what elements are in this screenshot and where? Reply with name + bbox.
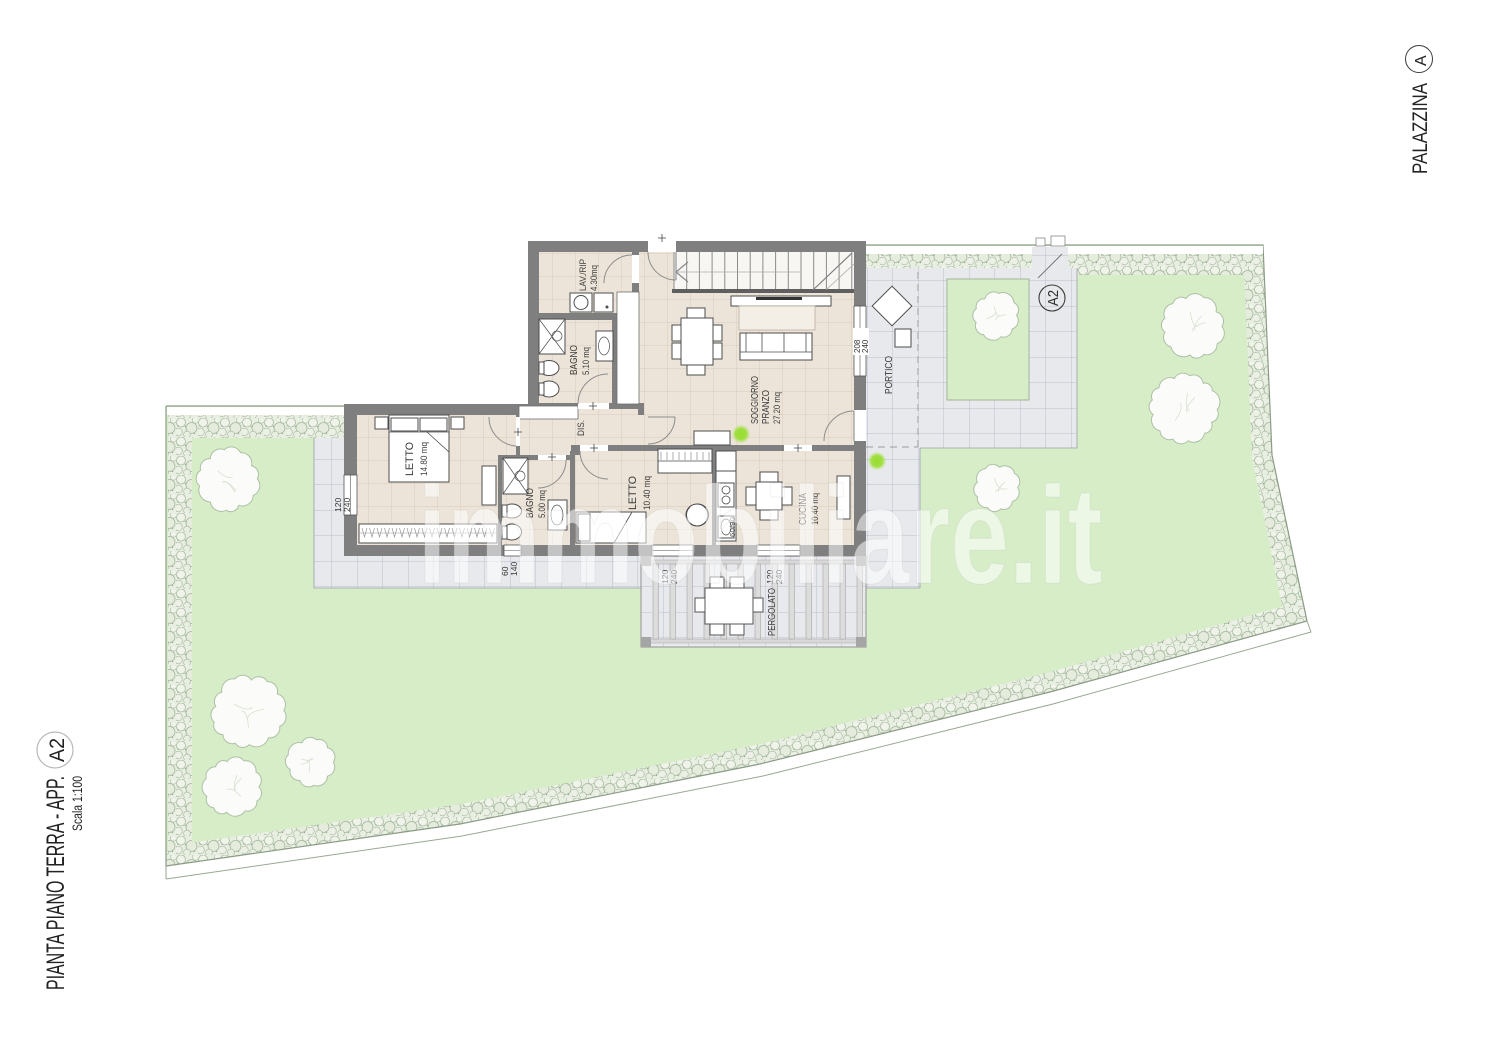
svg-text:27.20 mq: 27.20 mq (772, 392, 782, 424)
svg-text:240: 240 (342, 498, 352, 512)
svg-text:BAGNO: BAGNO (569, 345, 580, 375)
svg-text:5.10 mq: 5.10 mq (581, 347, 591, 375)
svg-text:PALAZZINA: PALAZZINA (1409, 83, 1432, 174)
svg-text:LETTO: LETTO (404, 442, 416, 476)
svg-text:240: 240 (861, 339, 870, 353)
svg-text:PORTICO: PORTICO (884, 356, 895, 394)
svg-text:PIANTA PIANO TERRA - APP.: PIANTA PIANO TERRA - APP. (42, 776, 70, 990)
svg-text:4.30mq: 4.30mq (589, 265, 599, 291)
svg-text:A2: A2 (1045, 290, 1062, 306)
svg-text:A: A (1413, 55, 1430, 66)
svg-text:Scala 1:100: Scala 1:100 (69, 776, 85, 831)
svg-text:immobiliare.it: immobiliare.it (418, 459, 1103, 613)
svg-text:DIS.: DIS. (576, 420, 587, 436)
svg-text:LAV./RIP: LAV./RIP (578, 259, 589, 291)
svg-text:PRANZO: PRANZO (761, 390, 772, 424)
svg-text:SOGGIORNO: SOGGIORNO (750, 376, 761, 424)
svg-text:A2: A2 (46, 738, 69, 762)
